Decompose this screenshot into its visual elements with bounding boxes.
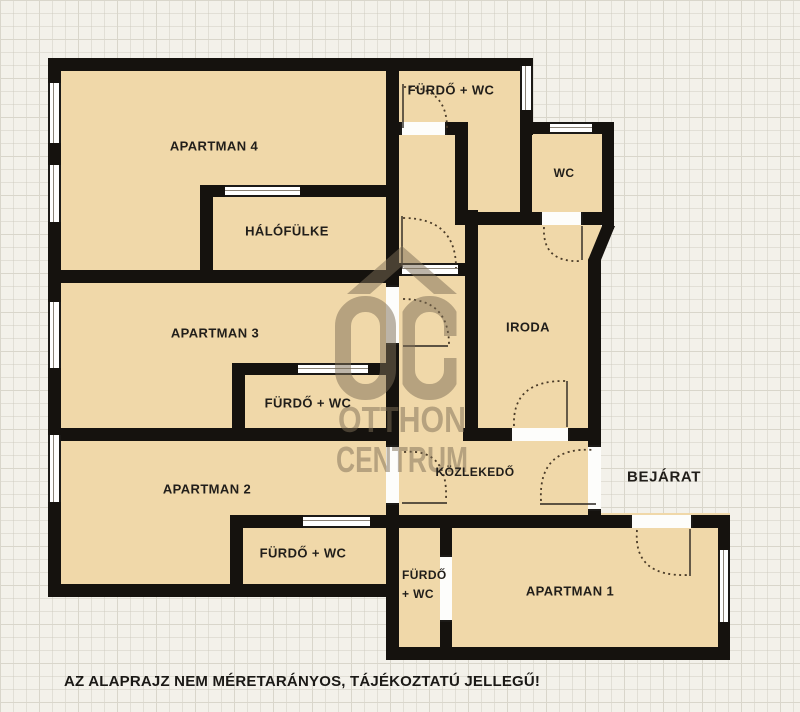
wall bbox=[230, 515, 243, 597]
room-label-iroda: IRODA bbox=[506, 320, 550, 335]
wall bbox=[48, 58, 533, 71]
door-opening bbox=[440, 555, 452, 622]
wall bbox=[386, 58, 399, 660]
label-bejarat: BEJÁRAT bbox=[627, 469, 701, 486]
wall bbox=[48, 270, 399, 283]
window bbox=[48, 435, 61, 502]
door-opening-main-entrance bbox=[588, 445, 601, 511]
wall bbox=[463, 212, 614, 225]
wall bbox=[588, 511, 601, 528]
wall bbox=[48, 428, 399, 441]
room-label-kozlekedo: KÖZLEKEDŐ bbox=[436, 465, 515, 479]
floorplan: OTTHON CENTRUM APARTMAN 4 HÁLÓFÜLKE FÜRD… bbox=[0, 0, 800, 712]
room-label-furdo-apartman1-line1: FÜRDŐ bbox=[402, 568, 447, 582]
wall bbox=[386, 647, 730, 660]
wall bbox=[200, 185, 213, 283]
window bbox=[303, 515, 370, 528]
door-opening-apartman1-entry bbox=[630, 515, 693, 528]
wall bbox=[465, 210, 478, 441]
window bbox=[225, 185, 300, 197]
room-label-apartman1: APARTMAN 1 bbox=[526, 584, 614, 599]
room-label-apartman3: APARTMAN 3 bbox=[171, 326, 259, 341]
room-label-apartman4: APARTMAN 4 bbox=[170, 139, 258, 154]
door-opening bbox=[540, 212, 583, 225]
room-label-furdo-apartman1-line2: + WC bbox=[402, 587, 434, 601]
window bbox=[48, 83, 61, 143]
window bbox=[48, 302, 61, 368]
disclaimer-text: AZ ALAPRAJZ NEM MÉRETARÁNYOS, TÁJÉKOZTAT… bbox=[64, 673, 540, 690]
door-opening bbox=[386, 285, 399, 345]
wall bbox=[48, 584, 399, 597]
wall bbox=[520, 122, 532, 225]
room-label-furdo-wc-apartman3: FÜRDŐ + WC bbox=[265, 396, 352, 411]
window bbox=[718, 550, 730, 622]
room-label-halofulke: HÁLÓFÜLKE bbox=[245, 224, 329, 239]
door-opening bbox=[400, 122, 447, 135]
room-label-apartman2: APARTMAN 2 bbox=[163, 482, 251, 497]
room-iroda-fill bbox=[463, 210, 601, 528]
room-label-furdo-wc-top: FÜRDŐ + WC bbox=[408, 83, 495, 98]
door-opening bbox=[386, 445, 399, 505]
wall bbox=[588, 258, 601, 445]
window bbox=[550, 122, 592, 134]
window bbox=[298, 363, 368, 375]
room-label-furdo-wc-apartman2: FÜRDŐ + WC bbox=[260, 546, 347, 561]
window bbox=[48, 165, 61, 222]
room-label-wc: WC bbox=[554, 166, 575, 180]
window bbox=[402, 263, 458, 276]
window bbox=[520, 66, 533, 110]
door-opening bbox=[510, 428, 570, 441]
